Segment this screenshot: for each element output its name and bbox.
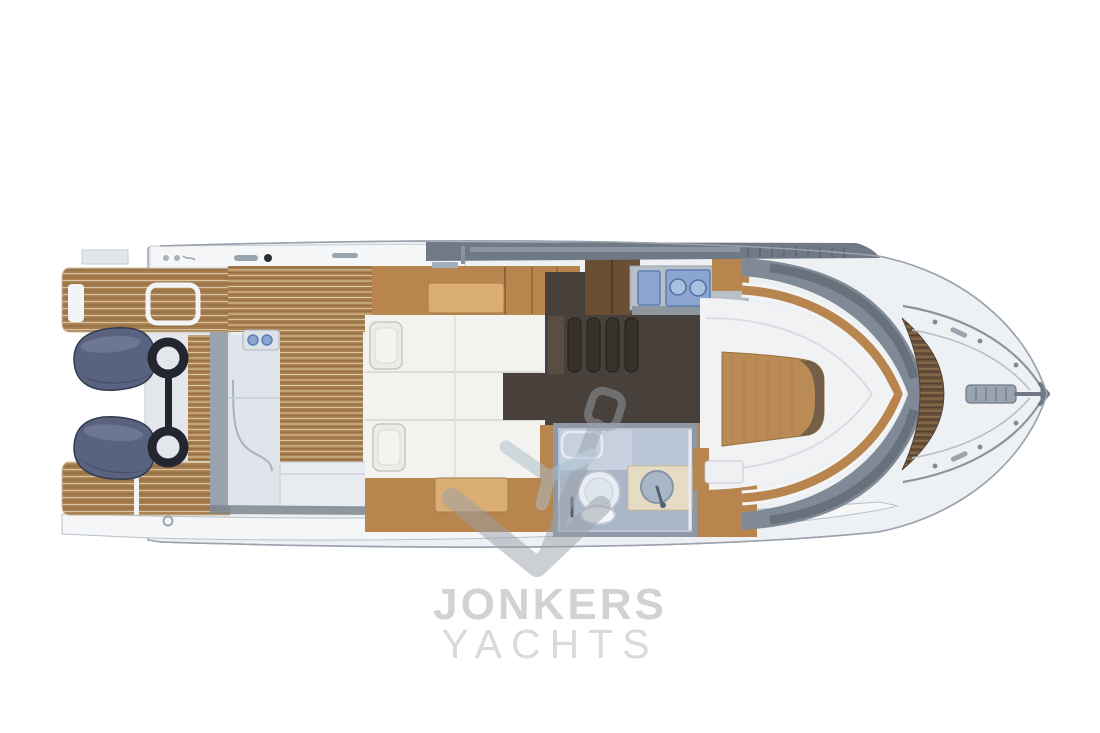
cockpit-settee — [280, 462, 372, 507]
companionway-landing — [548, 316, 564, 374]
dinette-table — [722, 352, 824, 446]
fuel-cap-icon — [264, 254, 272, 262]
transom-locker — [82, 250, 128, 264]
berth-pillow-icon — [373, 424, 405, 471]
platform-slot — [68, 284, 84, 322]
roof-highlight — [470, 247, 740, 252]
berth-pillow-icon — [370, 322, 402, 369]
burner-icon — [670, 279, 686, 295]
aft-cabin-step — [428, 283, 504, 313]
deck-fitting-icon — [174, 255, 180, 261]
transom-door — [210, 332, 228, 510]
cockpit-teak-floor — [280, 332, 363, 463]
cockpit-walkway — [228, 335, 280, 507]
burner-icon — [690, 280, 706, 296]
grill-burner-icon — [248, 335, 258, 345]
watermark-brand-line2: YACHTS — [0, 624, 1100, 665]
engine-tie-bar — [165, 372, 172, 434]
anchor-windlass-icon — [966, 385, 1016, 403]
cabin-step — [705, 461, 743, 483]
cleat-icon — [234, 255, 258, 261]
grill-burner-icon — [262, 335, 272, 345]
yacht-floorplan-page: JONKERS YACHTS — [0, 0, 1100, 733]
cleat-icon — [332, 253, 358, 258]
cockpit-gunwale — [150, 244, 465, 268]
galley-sink-icon — [638, 271, 660, 305]
bulkhead-divider — [461, 246, 465, 264]
hatch-strip — [432, 262, 458, 268]
deck-fitting-icon — [163, 255, 169, 261]
stern-teak-strip — [188, 335, 210, 461]
side-deck-teak — [228, 266, 372, 332]
